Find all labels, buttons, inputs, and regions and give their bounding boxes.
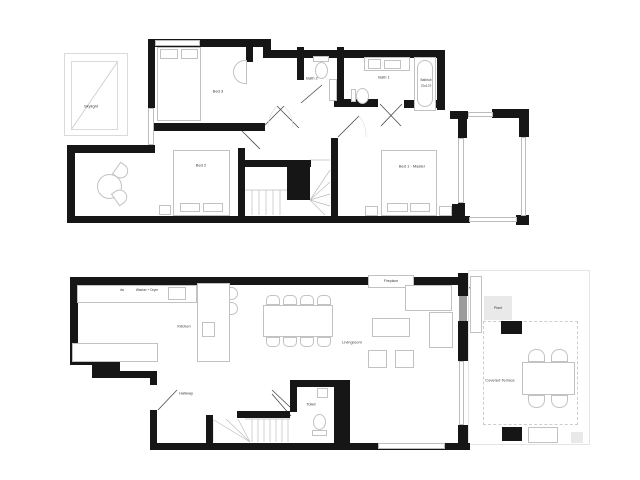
label-dishwasher: dw: [120, 289, 124, 293]
dining-chair: [283, 337, 297, 347]
window: [378, 443, 445, 449]
entry-door-leaf: [470, 276, 482, 333]
label-livingroom: Livingroom: [342, 341, 362, 346]
label-washer-dryer: Washer + Dryer: [136, 289, 158, 293]
plant-box-small: [571, 432, 583, 443]
toilet-bowl: [313, 414, 326, 430]
label-plant: Plant: [494, 306, 502, 310]
coffee-table: [372, 318, 410, 337]
ottoman: [395, 350, 414, 368]
label-fireplace: Fireplace: [384, 279, 398, 283]
dining-chair: [317, 337, 331, 347]
label-terrace: Covered Terrace: [485, 379, 515, 384]
dining-chair: [266, 337, 280, 347]
stool: [229, 287, 238, 300]
kitchen-counter-bottom: [72, 343, 158, 362]
ottoman: [368, 350, 387, 368]
sofa-chaise: [429, 312, 453, 348]
entry-sidelight: [459, 296, 467, 321]
wall: [237, 411, 290, 418]
wall: [290, 380, 297, 412]
toilet-sink: [317, 388, 328, 398]
terrace-sliding-door: [459, 361, 464, 425]
outdoor-bench: [528, 427, 558, 443]
wall: [206, 415, 213, 443]
floor-plan-lower: Fireplace dw Washer + Dryer Kitchen Livi…: [0, 0, 640, 480]
outdoor-chair: [551, 349, 568, 362]
wall: [458, 321, 468, 361]
terrace-pillar: [501, 321, 522, 334]
dining-table: [263, 305, 333, 337]
stool: [229, 302, 238, 315]
island-sink: [202, 322, 215, 337]
wall: [150, 371, 157, 385]
outdoor-table: [522, 362, 575, 395]
dining-chair: [300, 337, 314, 347]
toilet-tank: [312, 430, 327, 436]
dining-chair: [300, 295, 314, 305]
outdoor-chair: [528, 349, 545, 362]
floorplan-canvas: Skylight Bed 3 Bath 2 Bath 1 Bathtub 70x…: [0, 0, 640, 480]
label-kitchen: Kitchen: [177, 325, 190, 330]
dining-chair: [317, 295, 331, 305]
kitchen-appliance: [168, 287, 186, 300]
terrace-pillar: [502, 427, 522, 441]
sofa: [405, 285, 452, 311]
wall: [458, 425, 468, 448]
wall: [458, 273, 468, 296]
label-toilet: Toilet: [306, 403, 315, 408]
label-hallway: Hallway: [179, 392, 193, 397]
dining-chair: [283, 295, 297, 305]
wall: [334, 380, 350, 443]
dining-chair: [266, 295, 280, 305]
